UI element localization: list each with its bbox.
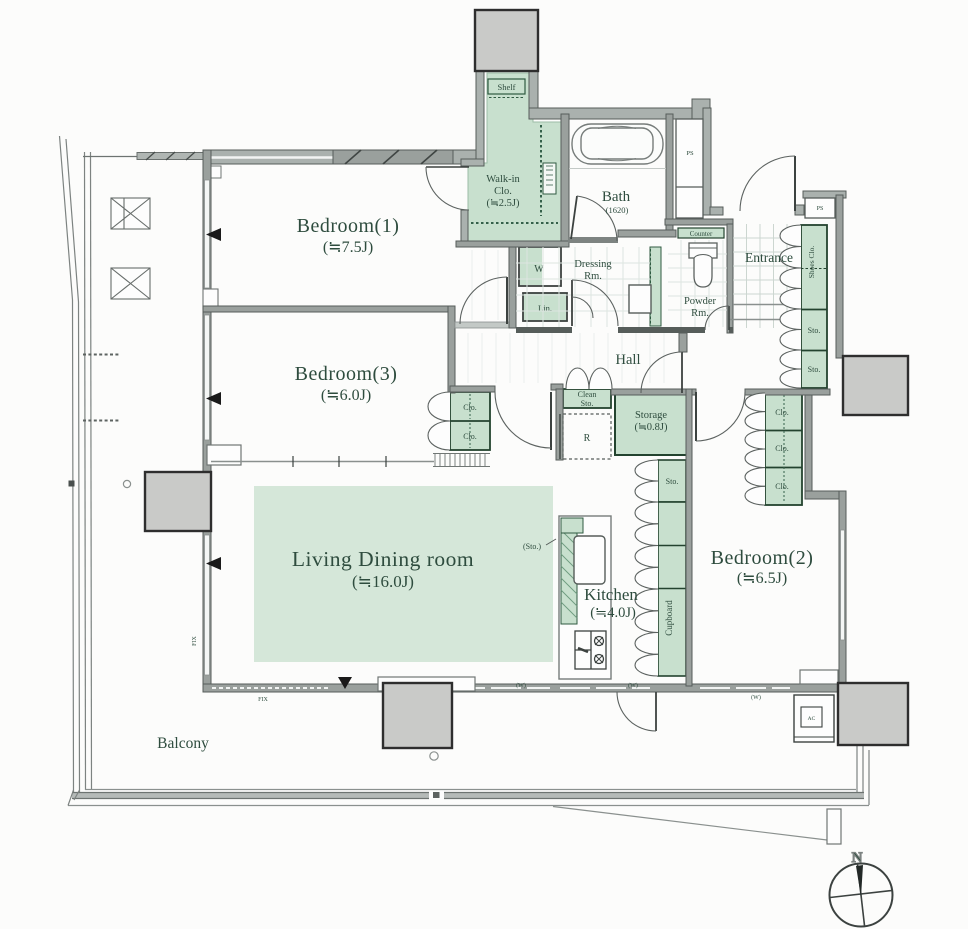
svg-text:(≒0.8J): (≒0.8J) <box>634 422 668 433</box>
svg-text:PS: PS <box>817 206 824 212</box>
svg-text:(≒6.0J): (≒6.0J) <box>321 387 371 404</box>
svg-text:Bedroom(3): Bedroom(3) <box>295 363 398 385</box>
svg-text:(≒6.5J): (≒6.5J) <box>737 570 787 587</box>
svg-text:Kitchen: Kitchen <box>584 585 638 604</box>
svg-text:(≒4.0J): (≒4.0J) <box>590 605 636 621</box>
svg-text:Sto.: Sto. <box>581 399 594 408</box>
svg-text:Clo.: Clo. <box>463 403 477 412</box>
svg-text:Cupboard: Cupboard <box>664 600 674 636</box>
svg-text:Dressing: Dressing <box>574 259 612 270</box>
svg-text:Clo.: Clo. <box>775 444 789 453</box>
svg-text:(W): (W) <box>628 682 638 689</box>
svg-text:Clean: Clean <box>578 390 597 399</box>
svg-text:(Sto.): (Sto.) <box>523 542 541 551</box>
svg-text:(W): (W) <box>751 694 761 701</box>
svg-text:PS: PS <box>686 150 694 157</box>
svg-text:(1620): (1620) <box>606 205 629 215</box>
svg-text:R: R <box>584 433 591 444</box>
svg-text:Sto.: Sto. <box>808 326 821 335</box>
svg-text:(≒2.5J): (≒2.5J) <box>486 198 520 209</box>
svg-text:Walk-in: Walk-in <box>486 174 520 185</box>
svg-text:FIX: FIX <box>192 636 198 646</box>
svg-text:Powder: Powder <box>684 296 717 307</box>
svg-text:Sto.: Sto. <box>808 365 821 374</box>
svg-text:Shelf: Shelf <box>498 82 516 92</box>
svg-text:Clo.: Clo. <box>775 482 789 491</box>
svg-text:(W): (W) <box>516 682 526 689</box>
svg-text:Sto.: Sto. <box>666 477 679 486</box>
svg-text:Rm.: Rm. <box>691 308 709 319</box>
svg-text:Clo.: Clo. <box>494 186 512 197</box>
svg-text:Balcony: Balcony <box>157 735 209 752</box>
svg-text:Bedroom(2): Bedroom(2) <box>711 547 814 569</box>
svg-text:Rm.: Rm. <box>584 271 602 282</box>
svg-text:Clo.: Clo. <box>775 408 789 417</box>
svg-text:Storage: Storage <box>635 410 667 421</box>
svg-text:(≒16.0J): (≒16.0J) <box>352 572 414 591</box>
svg-text:Bath: Bath <box>602 189 631 205</box>
svg-text:Hall: Hall <box>616 352 641 368</box>
svg-text:Counter: Counter <box>690 230 713 238</box>
svg-text:AC: AC <box>808 716 816 722</box>
svg-text:Shoes Clo.: Shoes Clo. <box>807 246 816 279</box>
svg-text:Bedroom(1): Bedroom(1) <box>297 215 400 237</box>
svg-text:Entrance: Entrance <box>745 250 793 265</box>
svg-text:N: N <box>852 850 863 866</box>
svg-text:Clo.: Clo. <box>463 432 477 441</box>
svg-text:Living Dining room: Living Dining room <box>292 547 474 571</box>
svg-text:(≒7.5J): (≒7.5J) <box>323 239 373 256</box>
svg-text:FIX: FIX <box>258 697 268 703</box>
